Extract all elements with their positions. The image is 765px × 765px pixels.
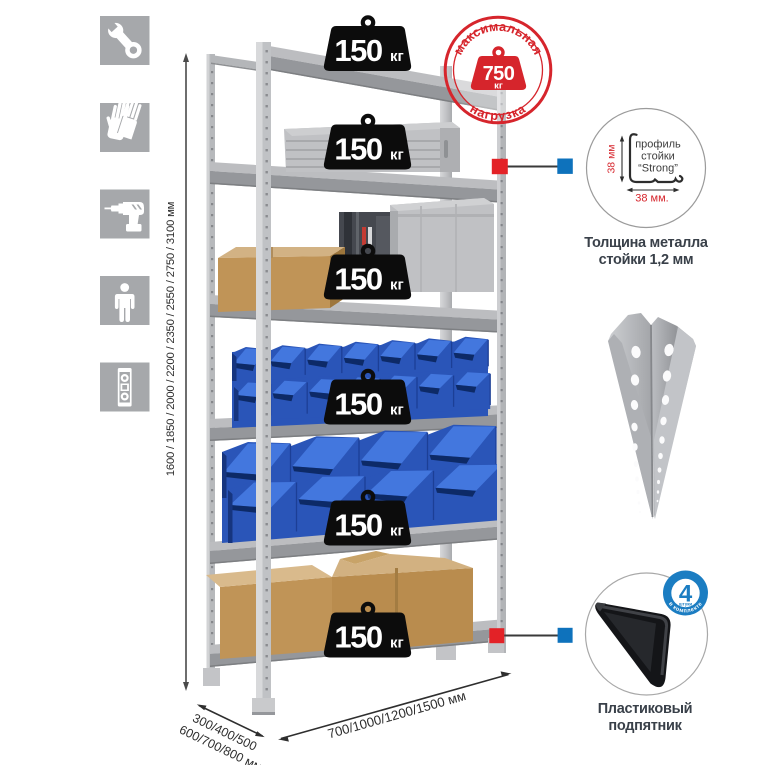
svg-text:150: 150 xyxy=(334,620,381,655)
svg-text:кг: кг xyxy=(390,635,404,652)
svg-text:38 мм: 38 мм xyxy=(606,144,618,173)
svg-text:профиль: профиль xyxy=(635,139,681,151)
svg-text:Пластиковый: Пластиковый xyxy=(598,701,693,717)
svg-text:“Strong”: “Strong” xyxy=(638,163,678,175)
svg-text:1600 / 1850 / 2000 / 2200 / 23: 1600 / 1850 / 2000 / 2200 / 2350 / 2550 … xyxy=(165,202,177,476)
svg-text:Толщина металла: Толщина металла xyxy=(584,235,709,251)
svg-text:стойки: стойки xyxy=(641,151,675,163)
svg-text:150: 150 xyxy=(334,132,381,167)
svg-text:150: 150 xyxy=(334,508,381,543)
svg-text:кг: кг xyxy=(390,523,404,540)
svg-text:700/1000/1200/1500 мм: 700/1000/1200/1500 мм xyxy=(326,688,468,741)
svg-text:подпятник: подпятник xyxy=(608,718,682,734)
svg-text:150: 150 xyxy=(334,387,381,422)
svg-text:150: 150 xyxy=(334,33,381,68)
svg-text:150: 150 xyxy=(334,262,381,297)
svg-text:кг: кг xyxy=(494,81,503,92)
svg-text:кг: кг xyxy=(390,147,404,164)
svg-text:стойки 1,2 мм: стойки 1,2 мм xyxy=(599,252,694,268)
svg-text:кг: кг xyxy=(390,402,404,419)
svg-text:38 мм.: 38 мм. xyxy=(635,193,668,205)
svg-text:кг: кг xyxy=(390,277,404,294)
svg-text:кг: кг xyxy=(390,48,404,65)
svg-text:штуки: штуки xyxy=(679,602,693,607)
